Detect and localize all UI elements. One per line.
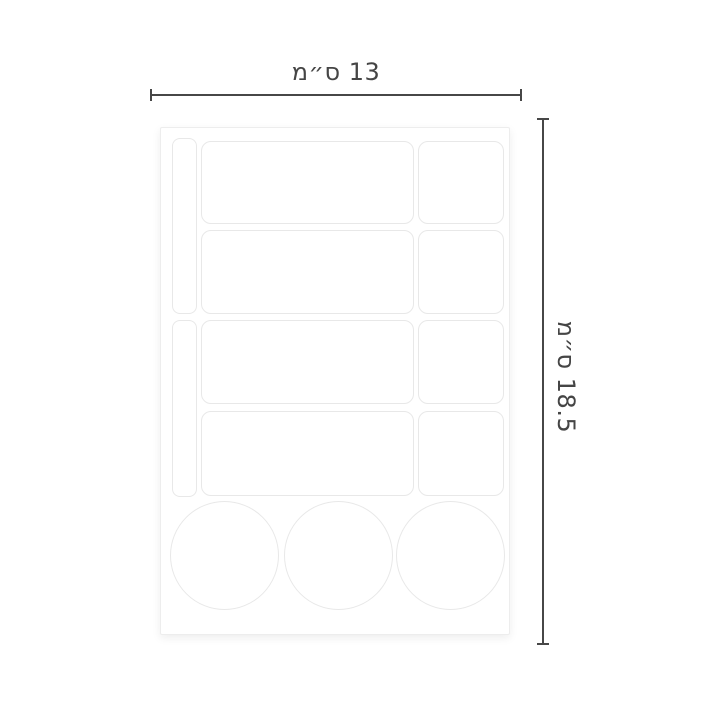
sticker-circle [396, 501, 505, 610]
sticker-rect-small [418, 320, 504, 404]
sticker-rect-small [418, 411, 504, 496]
sticker-rect-large [201, 230, 414, 314]
width-dimension-label: 13 ס״מ [150, 58, 522, 86]
sticker-circle [284, 501, 393, 610]
sticker-rect-small [418, 230, 504, 314]
sticker-rect-large [201, 320, 414, 404]
sticker-rect-small [418, 141, 504, 224]
sticker-rect-large [201, 411, 414, 496]
sticker-strip [172, 320, 197, 497]
sticker-circle [170, 501, 279, 610]
sticker-sheet-dimension-diagram: 13 ס״מ 18.5 ס״מ [0, 0, 720, 720]
width-dimension-line [150, 94, 522, 96]
sticker-rect-large [201, 141, 414, 224]
sticker-strip [172, 138, 197, 314]
sticker-sheet [160, 127, 510, 635]
height-dimension-line [542, 118, 544, 645]
height-dimension-label: 18.5 ס״מ [552, 321, 580, 433]
